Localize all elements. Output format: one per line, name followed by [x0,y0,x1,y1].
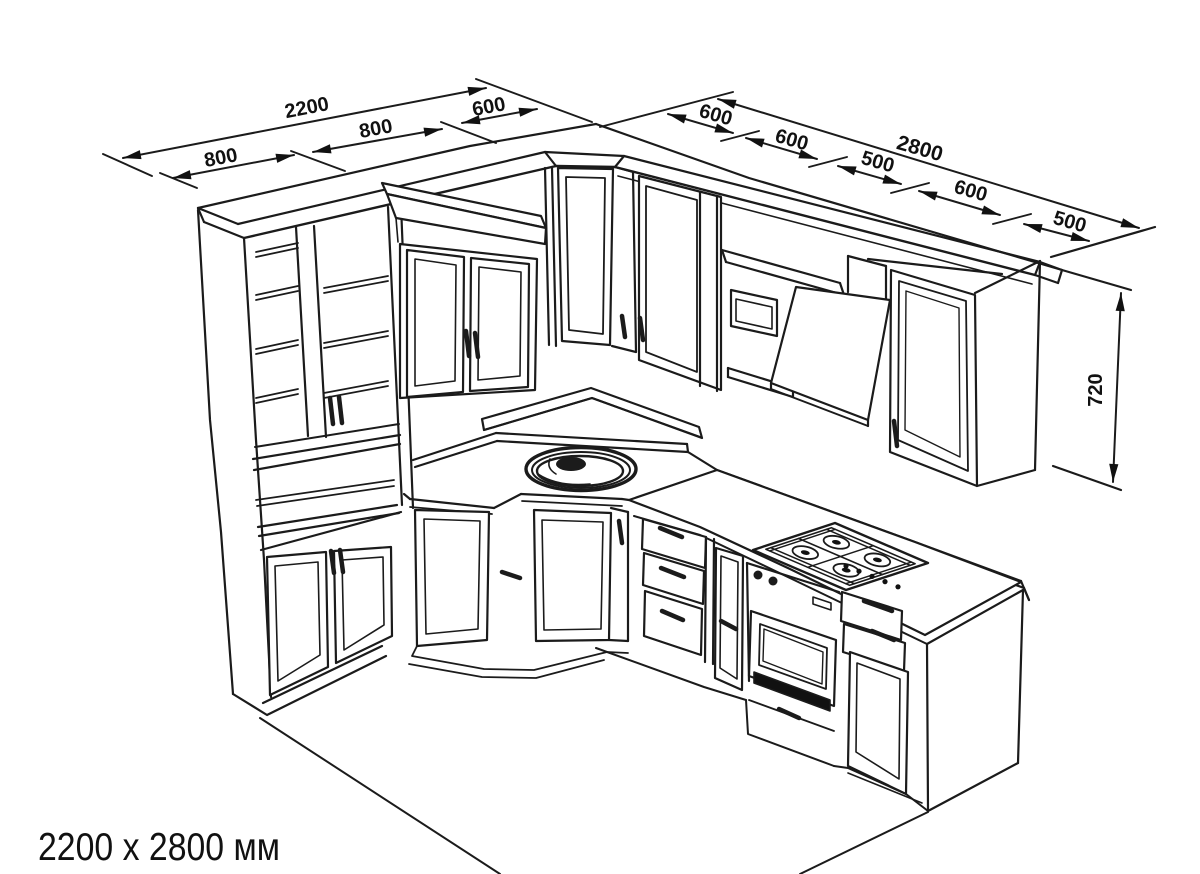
svg-text:2200 x 2800 мм: 2200 x 2800 мм [38,826,280,869]
svg-text:720: 720 [1085,373,1107,406]
